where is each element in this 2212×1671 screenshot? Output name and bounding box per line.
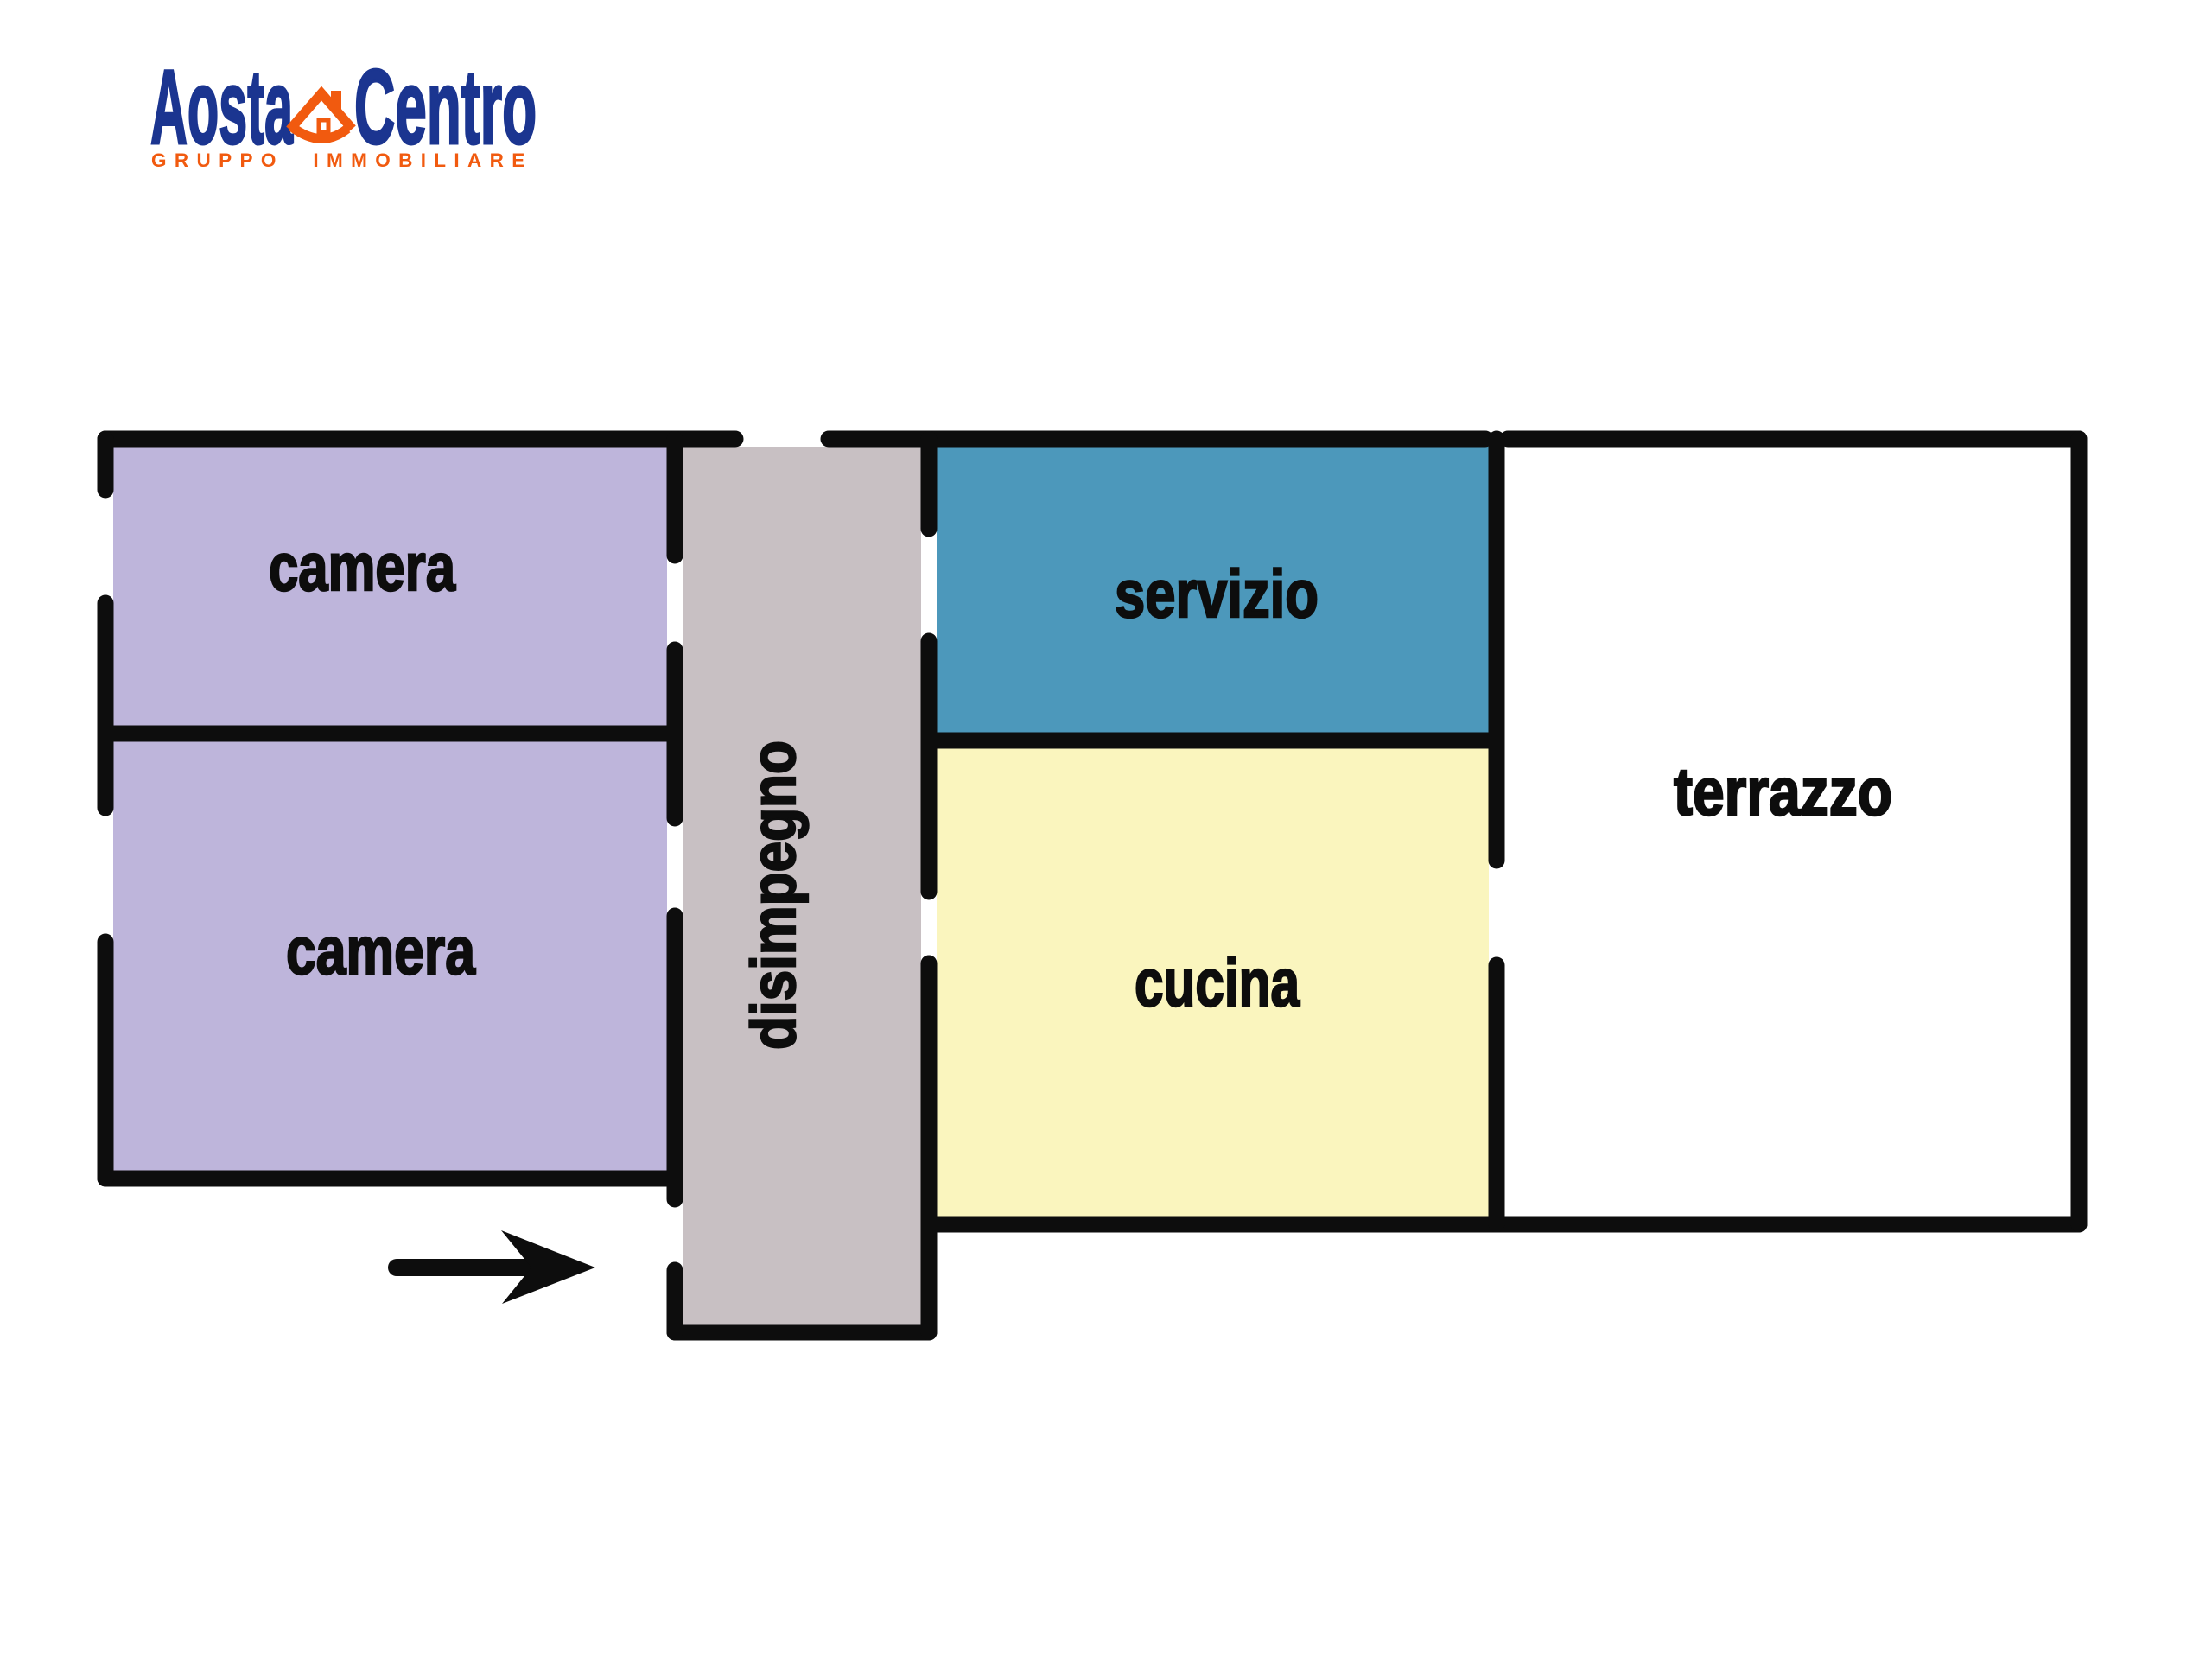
- svg-text:terrazzo: terrazzo: [1674, 753, 1892, 829]
- svg-text:camera: camera: [269, 529, 455, 605]
- svg-text:GRUPPO IMMOBILIARE: GRUPPO IMMOBILIARE: [151, 149, 533, 171]
- svg-text:camera: camera: [286, 912, 475, 988]
- svg-text:Centro: Centro: [354, 48, 537, 166]
- svg-text:disimpegno: disimpegno: [740, 740, 809, 1050]
- svg-text:cucina: cucina: [1135, 944, 1300, 1020]
- svg-text:servizio: servizio: [1115, 556, 1319, 632]
